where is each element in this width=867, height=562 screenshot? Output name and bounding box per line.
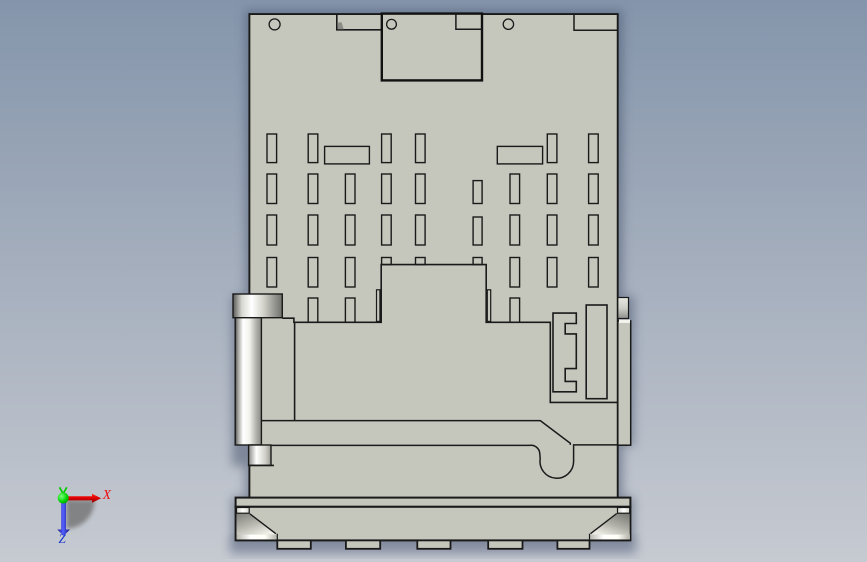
svg-text:Z: Z: [59, 531, 67, 546]
svg-text:X: X: [102, 487, 112, 502]
